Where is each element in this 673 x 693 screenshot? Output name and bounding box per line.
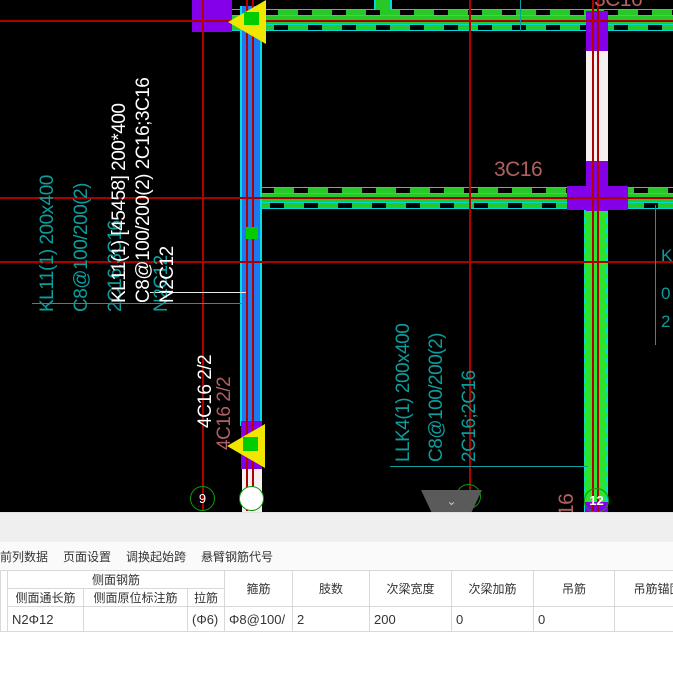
cell-secondary-beam-add[interactable]: 0 [452, 607, 534, 632]
beam-label-llk4-line2[interactable]: C8@100/200(2) [427, 333, 446, 462]
top-bar-label-3c16-mid[interactable]: 3C16 [494, 159, 542, 180]
rebar-table-wrap: 侧面钢筋 箍筋 肢数 次梁宽度 次梁加筋 吊筋 吊筋锚固 侧面通长筋 侧面原位标… [0, 570, 673, 632]
table-row: N2Φ12 (Φ6) Φ8@100/ 2 200 0 0 [1, 607, 673, 632]
header-hanging-bar: 吊筋 [534, 571, 615, 607]
beam-label-kl11-line1[interactable]: KL11(1) 200x400 [38, 175, 57, 312]
cell-hanging-anchor[interactable] [615, 607, 673, 632]
selection-grip-bottom[interactable] [243, 437, 258, 451]
grid-line-horizontal-1 [0, 20, 673, 22]
selection-grip-mid[interactable] [246, 227, 258, 239]
beam-label-llk4-line1[interactable]: LLK4(1) 200x400 [394, 324, 413, 462]
collapse-panel-button[interactable]: ⌄ [421, 490, 482, 512]
span-label-4c16-red[interactable]: 4C16 2/2 [215, 377, 234, 450]
highlight-label-kl11-line1[interactable]: KL11(1) [45458] 200*400 [110, 104, 129, 303]
row-selector-column[interactable] [1, 571, 8, 632]
header-stirrup: 箍筋 [225, 571, 293, 607]
grid-line-vertical-9 [202, 0, 204, 511]
header-side-rebar-group: 侧面钢筋 [8, 571, 225, 589]
beam-label-kl11-line2[interactable]: C8@100/200(2) [72, 183, 91, 312]
beam-rebar-cad-window: KL11(1) 200x400 C8@100/200(2) 2C16;3C16 … [0, 0, 673, 693]
column-top-left[interactable] [192, 0, 232, 32]
beam-stub-top[interactable] [374, 0, 392, 10]
leader-line-teal-topvert [520, 0, 521, 31]
header-secondary-beam-width: 次梁宽度 [370, 571, 452, 607]
clipped-label-16[interactable]: 16 [556, 494, 577, 512]
edge-label-fragment-2: 2 [661, 313, 670, 330]
tab-page-setup[interactable]: 页面设置 [63, 548, 111, 565]
cell-stirrup[interactable]: Φ8@100/ [225, 607, 293, 632]
cell-legs[interactable]: 2 [293, 607, 370, 632]
chevron-down-icon: ⌄ [446, 494, 456, 508]
axis-bubble-9[interactable]: 9 [190, 486, 215, 511]
header-legs: 肢数 [293, 571, 370, 607]
edge-label-fragment-0: 0 [661, 285, 670, 302]
panel-tab-row: 前列数据 页面设置 调换起始跨 悬臂钢筋代号 [0, 542, 673, 570]
header-hanging-anchor: 吊筋锚固 [615, 571, 673, 607]
header-side-insitu-bar: 侧面原位标注筋 [84, 589, 188, 607]
top-bar-label-3c16-right[interactable]: 3C16 [594, 0, 642, 10]
beam-label-llk4-line3[interactable]: 2C16;2C16 [460, 370, 479, 462]
tab-front-column-data[interactable]: 前列数据 [0, 548, 48, 565]
leader-line-teal-left [32, 303, 243, 304]
axis-bubble-10[interactable] [239, 486, 264, 511]
span-label-4c16-white[interactable]: 4C16 2/2 [196, 355, 215, 428]
bottom-data-panel: 前列数据 页面设置 调换起始跨 悬臂钢筋代号 侧面钢筋 箍筋 肢数 次梁宽度 次… [0, 512, 673, 693]
cell-side-through-bar[interactable]: N2Φ12 [8, 607, 84, 632]
header-tie-bar: 拉筋 [188, 589, 225, 607]
cell-hanging-bar[interactable]: 0 [534, 607, 615, 632]
panel-spacer-strip [0, 512, 673, 542]
header-side-through-bar: 侧面通长筋 [8, 589, 84, 607]
leader-line-teal-bottom [390, 466, 588, 467]
grid-line-vertical-12a [592, 0, 594, 511]
beam-vertical-selected-blue[interactable] [240, 6, 262, 426]
cell-secondary-beam-width[interactable]: 200 [370, 607, 452, 632]
highlight-label-kl11-line2[interactable]: C8@100/200(2) 2C16;3C16 [134, 78, 153, 303]
tab-cantilever-rebar-code[interactable]: 悬臂钢筋代号 [201, 548, 273, 565]
drawing-canvas[interactable]: KL11(1) 200x400 C8@100/200(2) 2C16;3C16 … [0, 0, 673, 512]
leader-line-teal-rightvert [655, 205, 656, 345]
selection-grip-top[interactable] [244, 12, 259, 25]
grid-line-horizontal-3 [0, 261, 673, 263]
rebar-data-table: 侧面钢筋 箍筋 肢数 次梁宽度 次梁加筋 吊筋 吊筋锚固 侧面通长筋 侧面原位标… [0, 570, 673, 632]
axis-bubble-12[interactable]: 12 [584, 488, 609, 512]
grid-line-horizontal-2 [0, 197, 673, 199]
edge-label-fragment-k: K [661, 247, 672, 264]
highlight-label-kl11-line3[interactable]: N2C12 [158, 246, 177, 303]
grid-line-vertical-12b [597, 0, 599, 511]
cell-side-insitu-bar[interactable] [84, 607, 188, 632]
header-secondary-beam-add: 次梁加筋 [452, 571, 534, 607]
cell-tie-bar[interactable]: (Φ6) [188, 607, 225, 632]
tab-swap-start-span[interactable]: 调换起始跨 [126, 548, 186, 565]
